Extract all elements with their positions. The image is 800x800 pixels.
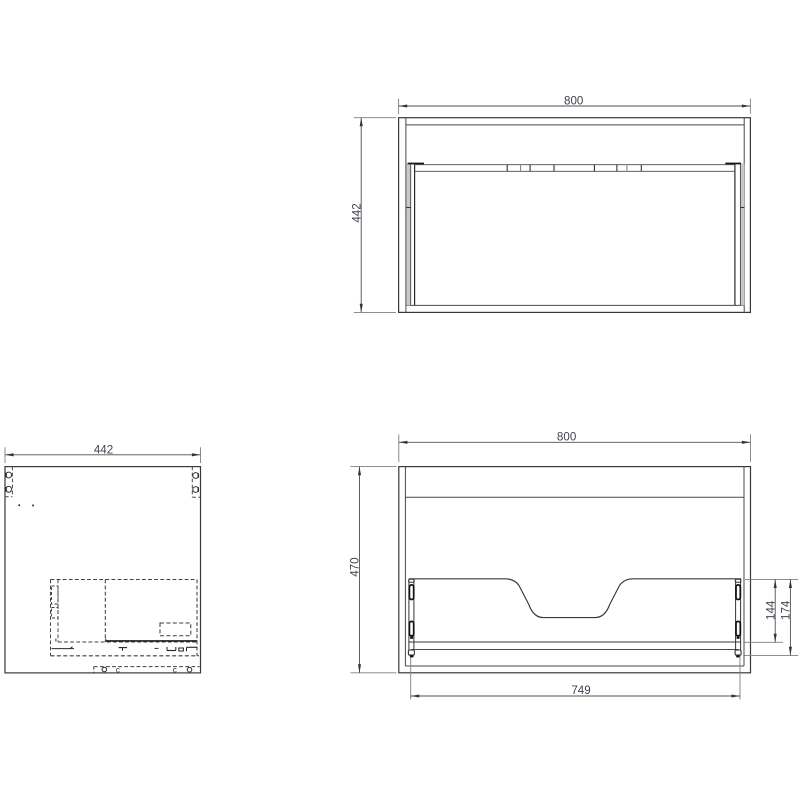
svg-text:442: 442	[350, 203, 363, 222]
svg-text:c: c	[173, 666, 177, 675]
svg-text:800: 800	[557, 431, 576, 444]
svg-text:800: 800	[564, 95, 583, 108]
svg-text:442: 442	[94, 443, 113, 456]
svg-text:144: 144	[764, 600, 777, 620]
svg-text:174: 174	[780, 600, 793, 620]
svg-text:c: c	[116, 666, 120, 675]
svg-text:749: 749	[571, 684, 590, 697]
svg-text:470: 470	[348, 557, 361, 576]
